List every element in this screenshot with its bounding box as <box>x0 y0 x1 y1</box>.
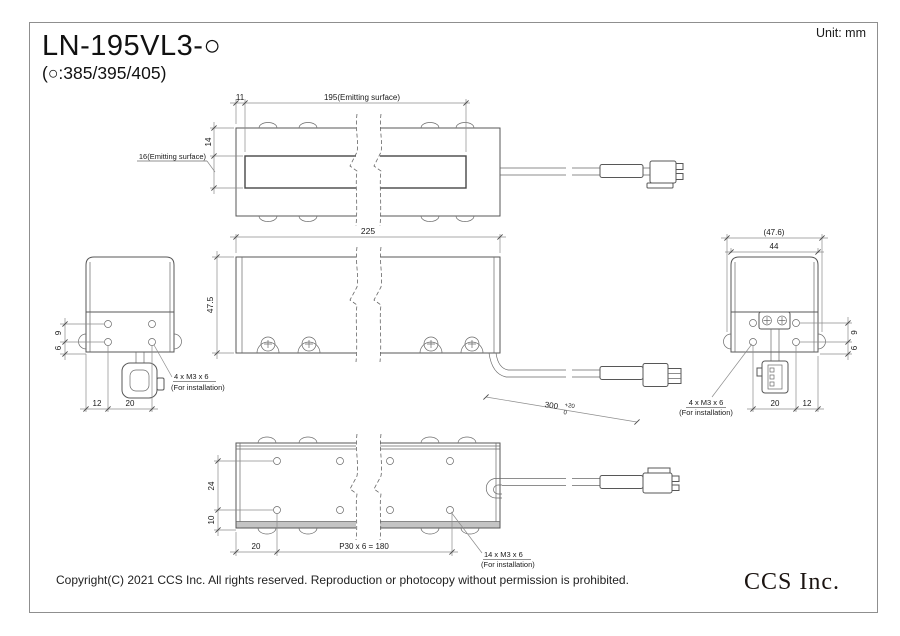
dim-225: 225 <box>361 226 375 236</box>
page-title: LN-195VL3-○ <box>42 30 221 62</box>
screw-note-line1: 14 x M3 x 6 <box>484 550 523 559</box>
cable-sleeve <box>600 367 643 380</box>
front-view: 225 47.5 300 +20 0 <box>205 226 681 425</box>
company-logo: CCS Inc. <box>744 569 840 595</box>
right-view-body <box>724 257 826 393</box>
hanging-connector <box>122 352 164 398</box>
dim-6: 6 <box>54 345 63 350</box>
front-view-cable <box>489 353 681 387</box>
cable-connector <box>643 364 668 387</box>
dim-300: 300 <box>544 400 559 411</box>
top-view-dimensions: 11 195(Emitting surface) 14 16(Emitting … <box>137 93 470 194</box>
cable-sleeve <box>600 165 643 178</box>
dim-20: 20 <box>252 542 261 551</box>
dim-9: 9 <box>850 330 859 335</box>
top-view-cable <box>500 161 683 188</box>
page-subtitle: (○:385/395/405) <box>42 63 166 83</box>
screw-note-line1: 4 x M3 x 6 <box>689 398 724 407</box>
mounting-holes <box>105 321 156 346</box>
tolerance-upper: +20 <box>564 403 576 411</box>
screw-note-line2: (For installation) <box>481 560 535 569</box>
dim-pitch: P30 x 6 = 180 <box>339 542 389 551</box>
dim-12: 12 <box>93 399 102 408</box>
bottom-view-cable <box>486 468 679 498</box>
tolerance-lower: 0 <box>563 410 568 417</box>
unit-label: Unit: mm <box>816 26 866 40</box>
dim-12: 12 <box>803 399 812 408</box>
dim-20: 20 <box>771 399 780 408</box>
dim-24: 24 <box>207 481 216 490</box>
emitting-surface-window <box>245 156 466 188</box>
top-view: 11 195(Emitting surface) 14 16(Emitting … <box>137 93 683 226</box>
cable-connector <box>643 473 672 493</box>
dim-10: 10 <box>207 515 216 524</box>
dim-14: 14 <box>204 137 213 146</box>
copyright-text: Copyright(C) 2021 CCS Inc. All rights re… <box>56 573 629 587</box>
dim-47-5: 47.5 <box>205 296 215 313</box>
right-side-view: (47.6) 44 9 6 20 12 4 x M3 x 6 (For inst… <box>679 228 859 417</box>
screw-note-line1: 4 x M3 x 6 <box>174 372 209 381</box>
cable-length-dim: 300 +20 0 <box>543 400 575 418</box>
dim-44: 44 <box>770 242 779 251</box>
cable-sleeve <box>600 476 643 489</box>
label-16-emitting: 16(Emitting surface) <box>139 152 207 161</box>
strain-relief-block <box>759 312 790 329</box>
dim-9: 9 <box>54 330 63 335</box>
screw-note-line2: (For installation) <box>171 383 225 392</box>
left-side-view: 12 20 9 6 4 x M3 x 6 (For installation) <box>54 257 225 412</box>
front-view-dimensions: 225 47.5 300 +20 0 <box>205 226 640 425</box>
screw-note-line2: (For installation) <box>679 408 733 417</box>
bottom-view: 24 10 20 P30 x 6 = 180 14 x M3 x 6 (For … <box>207 434 679 569</box>
left-view-body <box>79 257 182 398</box>
dim-47-6: (47.6) <box>764 228 785 237</box>
dim-195-emitting: 195(Emitting surface) <box>324 93 400 102</box>
dim-11: 11 <box>236 93 245 102</box>
dim-20: 20 <box>126 399 135 408</box>
cable-connector <box>650 161 676 183</box>
dim-6: 6 <box>850 345 859 350</box>
hanging-connector <box>757 329 788 393</box>
drawing-sheet: LN-195VL3-○ (○:385/395/405) Unit: mm Cop… <box>0 0 900 636</box>
